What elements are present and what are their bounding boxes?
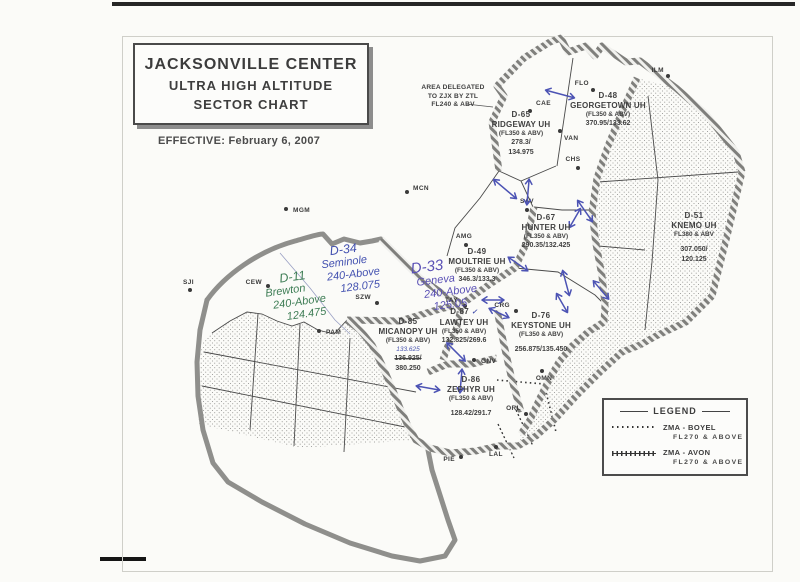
city-label: PAM — [326, 329, 341, 336]
city-dot — [540, 369, 544, 373]
city-dot — [459, 455, 463, 459]
pencil-divider-line — [280, 253, 350, 334]
city-label: GNV — [481, 358, 497, 365]
city-label: OMN — [536, 375, 552, 382]
chart-title-box: JACKSONVILLE CENTER ULTRA HIGH ALTITUDE … — [133, 43, 369, 125]
city-label: CRG — [494, 302, 510, 309]
pen-double-arrow — [560, 270, 573, 297]
city-dot — [375, 301, 379, 305]
city-label: ILM — [652, 67, 664, 74]
city-dot — [494, 445, 498, 449]
crossed-line-key-icon — [612, 451, 656, 456]
city-dot — [463, 304, 467, 308]
ocean-stipple-region — [518, 78, 742, 446]
pen-double-arrow — [482, 297, 504, 303]
city-flo: FLO — [575, 80, 595, 92]
legend-box: LEGEND ZMA - BOYEL FL270 & ABOVE ZMA - A… — [602, 398, 748, 476]
legend-dash-right — [702, 411, 730, 412]
pen-double-arrow — [491, 177, 518, 201]
pen-double-arrow — [554, 292, 571, 314]
city-dot — [558, 129, 562, 133]
city-label: PIE — [443, 456, 455, 463]
pen-double-arrow — [457, 369, 465, 393]
city-dot — [188, 288, 192, 292]
city-cew: CEW — [246, 279, 270, 288]
city-cae: CAE — [528, 100, 551, 113]
city-amg: AMG — [456, 233, 472, 247]
city-dot — [472, 358, 476, 362]
delegated-note-line3: FL240 & ABV — [403, 101, 503, 110]
city-label: MGM — [293, 207, 310, 214]
city-omn: OMN — [536, 369, 552, 382]
legend-dash-left — [620, 411, 648, 412]
city-label: VAN — [564, 135, 578, 142]
city-label: CHS — [566, 156, 581, 163]
pen-double-arrow — [545, 87, 576, 101]
scanned-sector-chart-page: MGMMCNCEWSJIPAMSZWTAYAMGCRGGNVOMNORLPIEL… — [0, 0, 800, 582]
city-label: CEW — [246, 279, 263, 286]
city-dot — [576, 166, 580, 170]
city-dot — [525, 208, 529, 212]
city-dot — [666, 74, 670, 78]
city-dot — [266, 284, 270, 288]
city-szw: SZW — [355, 294, 379, 305]
legend-item-zma-boyel: ZMA - BOYEL FL270 & ABOVE — [612, 423, 746, 441]
legend-sublabel: FL270 & ABOVE — [673, 459, 743, 466]
city-label: SJI — [183, 279, 194, 286]
city-pie: PIE — [443, 455, 463, 463]
chart-title-line3: SECTOR CHART — [193, 97, 308, 112]
city-label: FLO — [575, 80, 589, 87]
city-orl: ORL — [506, 405, 528, 416]
chart-title-line1: JACKSONVILLE CENTER — [145, 56, 358, 74]
city-dot — [284, 207, 288, 211]
sector-map: MGMMCNCEWSJIPAMSZWTAYAMGCRGGNVOMNORLPIEL… — [0, 0, 800, 582]
gulf-grid-stipple-region — [197, 312, 416, 448]
city-dot — [464, 243, 468, 247]
city-dot — [524, 412, 528, 416]
legend-title: LEGEND — [653, 406, 697, 416]
city-label: AMG — [456, 233, 472, 240]
city-label: ORL — [506, 405, 521, 412]
city-chs: CHS — [566, 156, 581, 170]
city-mcn: MCN — [405, 185, 429, 194]
city-dot — [405, 190, 409, 194]
city-mgm: MGM — [284, 207, 310, 214]
legend-sublabel: FL270 & ABOVE — [673, 434, 743, 441]
city-label: MCN — [413, 185, 429, 192]
pen-double-arrow — [416, 383, 441, 393]
delegated-area-note: AREA DELEGATED TO ZJX BY ZTL FL240 & ABV — [403, 84, 503, 110]
city-sji: SJI — [183, 279, 194, 292]
delegated-note-line2: TO ZJX BY ZTL — [403, 93, 503, 102]
legend-title-row: LEGEND — [604, 406, 746, 416]
dotted-line-key-icon — [612, 426, 656, 428]
city-label: LAL — [489, 451, 503, 458]
city-label: TAY — [445, 297, 458, 304]
city-label: CAE — [536, 100, 551, 107]
city-label: SZW — [355, 294, 371, 301]
legend-label: ZMA - BOYEL — [663, 423, 743, 432]
city-dot — [591, 88, 595, 92]
chart-title-line2: ULTRA HIGH ALTITUDE — [169, 78, 333, 93]
city-dot — [514, 309, 518, 313]
delegated-note-line1: AREA DELEGATED — [403, 84, 503, 93]
city-dot — [317, 329, 321, 333]
legend-item-zma-avon: ZMA - AVON FL270 & ABOVE — [612, 448, 746, 466]
city-dot — [528, 109, 532, 113]
legend-label: ZMA - AVON — [663, 448, 743, 457]
effective-date: EFFECTIVE: February 6, 2007 — [158, 135, 320, 147]
